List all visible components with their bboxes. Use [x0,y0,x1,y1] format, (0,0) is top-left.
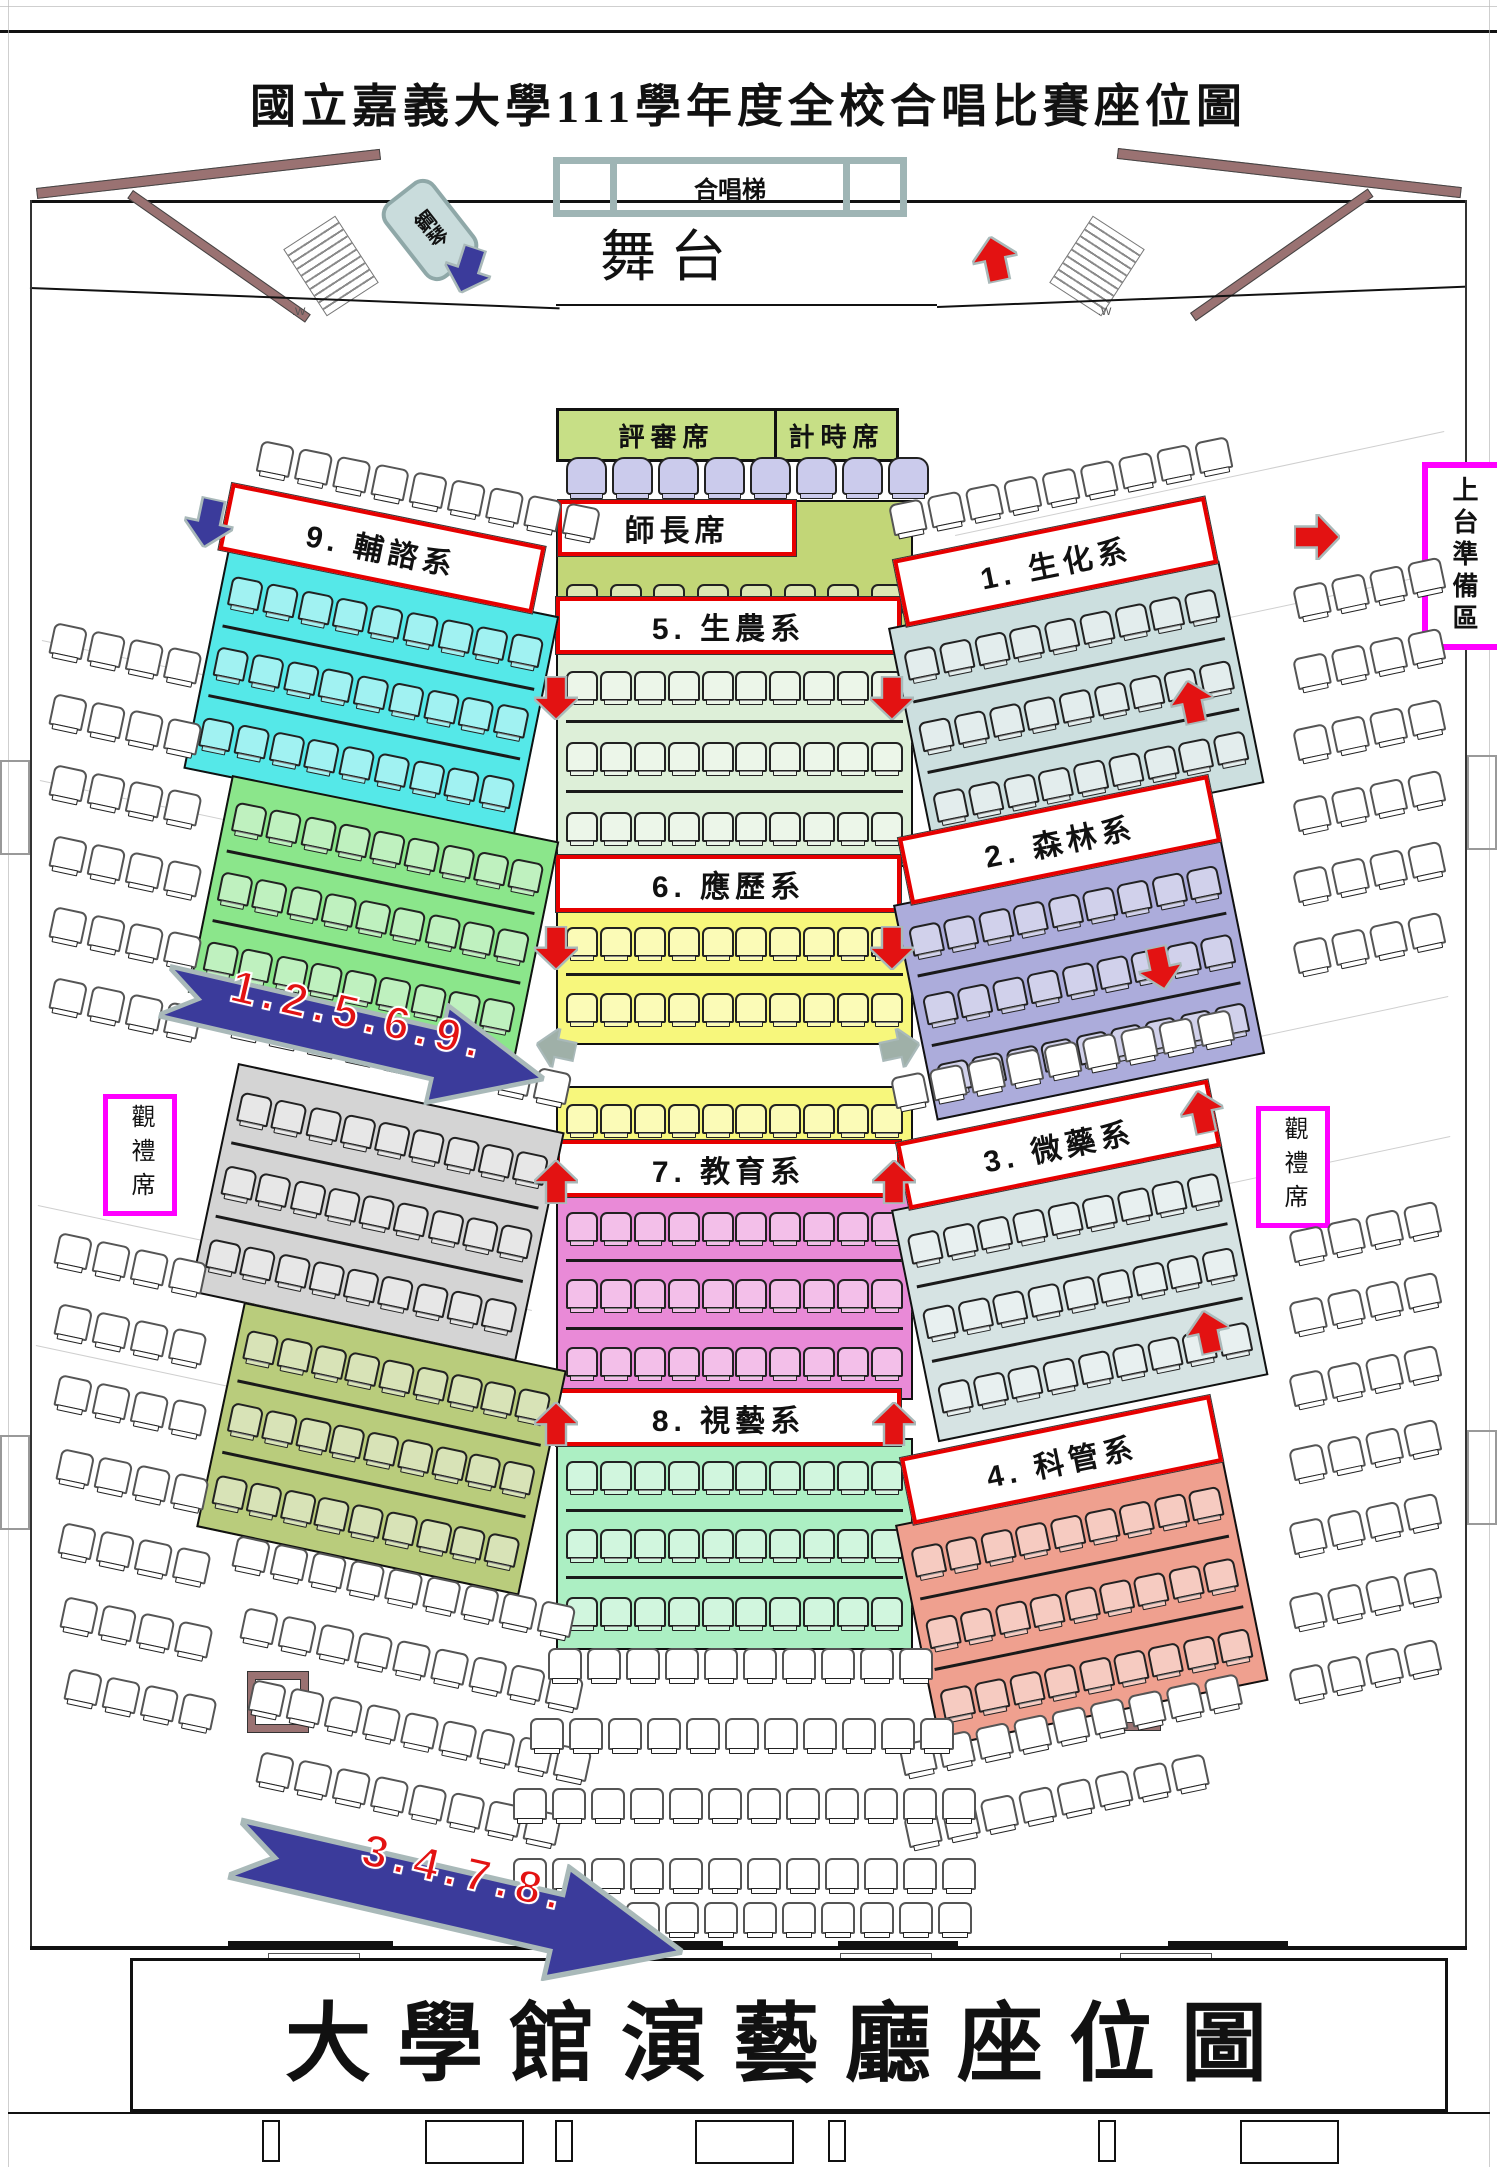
seat [803,742,835,772]
seat [769,1461,801,1491]
seat [600,671,632,701]
seat [1131,1260,1168,1296]
seat [178,1692,218,1730]
seat [537,1600,577,1638]
seat [803,1597,835,1627]
seat [979,1528,1016,1564]
seat [247,1679,287,1717]
seat [956,983,993,1019]
seat [1406,699,1446,737]
seat [496,1223,534,1259]
seat [347,1503,385,1539]
seat [803,1279,835,1309]
seat [964,483,1004,521]
seat [837,1597,869,1627]
seat [1043,1040,1083,1078]
seat [903,1858,937,1890]
seat [977,907,1014,943]
seat [476,1728,516,1766]
seat [1094,1769,1134,1807]
seat [168,1327,208,1365]
seat [48,835,88,873]
seat [566,1461,598,1491]
seat [899,1902,933,1934]
seat [408,1783,448,1821]
seat [316,1623,356,1661]
seat-row [53,1303,207,1366]
wall-line [30,200,32,1950]
seat [1158,1017,1198,1055]
seat [324,1187,362,1223]
seat [708,1858,742,1890]
door-box [1240,2120,1339,2164]
stage-edge [556,304,937,306]
seat-row [63,1668,217,1731]
seat [669,1788,703,1820]
seat [769,812,801,842]
seat-row [48,764,202,827]
seat [1402,1201,1442,1239]
seat [1107,752,1144,788]
seat [354,1631,394,1669]
seat [1119,1025,1159,1063]
seat [1402,1493,1442,1531]
seat [1083,1507,1120,1543]
seat [1364,1501,1404,1539]
page-title: 國立嘉義大學111學年度全校合唱比賽座位圖 [0,70,1497,136]
seat [1060,961,1097,997]
seat [168,1398,208,1436]
seat [1012,900,1049,936]
seat [926,490,966,528]
seat-row [566,652,903,723]
seat [702,927,734,957]
seat [1326,1361,1366,1399]
seat [566,812,598,842]
seat [1148,595,1185,631]
seat [566,1279,598,1309]
judges-seat-label: 評審席 [559,411,777,459]
seat [974,1722,1014,1760]
seat [55,1448,95,1486]
red-up-arrow-icon [872,1160,916,1204]
seat [1288,1591,1328,1629]
seat [1292,581,1332,619]
seat [370,463,410,501]
seat [769,671,801,701]
seat [735,1461,767,1491]
seat [938,638,975,674]
seat [668,1461,700,1491]
seat-row [566,1092,903,1146]
seat [217,871,254,907]
seat [668,927,700,957]
seat [1061,1275,1098,1311]
seat [612,457,653,495]
seat [634,812,666,842]
seat [1185,864,1222,900]
seat [569,1718,603,1750]
wall-segment [838,1941,958,1950]
seat [332,1767,372,1805]
seat [462,1216,500,1252]
seat [1058,688,1095,724]
seat [1216,1628,1253,1664]
seat [942,1788,976,1820]
seat [48,764,88,802]
seat [803,671,835,701]
seat [669,1858,703,1890]
seat [702,1529,734,1559]
seat [1037,766,1074,802]
seat [255,1751,295,1789]
seat [86,843,126,881]
seat [1326,1435,1366,1473]
wall-segment [1168,1941,1288,1950]
door-box [425,2120,524,2164]
seat-row [566,1444,903,1512]
seat [513,1788,547,1820]
seat [704,457,745,495]
seat [1147,1642,1184,1678]
seat [397,1438,435,1474]
seat [704,1902,738,1934]
seat [634,1461,666,1491]
door-post [262,2120,280,2162]
seat [59,1596,99,1634]
seat [1017,1786,1057,1824]
section-8-label: 8. 視藝系 [556,1389,901,1446]
seat [392,1639,432,1677]
seat-row [48,622,202,685]
seat [786,1858,820,1890]
seat [634,742,666,772]
seat [1326,1583,1366,1621]
seat [665,1648,699,1680]
seat [507,633,544,669]
seat [286,885,323,921]
seat [242,1330,280,1366]
seat [600,742,632,772]
seat [973,631,1010,667]
seat [424,913,461,949]
seat [227,576,264,612]
seat [1196,1009,1236,1047]
seat [552,1788,586,1820]
seat [125,780,165,818]
seat [1165,1681,1205,1719]
seat [1005,1048,1045,1086]
seat [786,1788,820,1820]
seat [1132,1571,1169,1607]
seat [97,1604,137,1642]
seat [1041,467,1081,505]
seat [735,993,767,1023]
seat [591,1788,625,1820]
wall-niche [1467,1430,1497,1525]
seat [634,1597,666,1627]
seat [743,1648,777,1680]
door-post [1098,2120,1116,2162]
judges-timer-box: 評審席 計時席 [556,408,899,462]
seat [447,479,487,517]
seat-row [48,693,202,756]
seat [938,1902,972,1934]
seat [438,844,475,880]
seat [1096,1268,1133,1304]
seat [130,1248,170,1286]
seat [881,1718,915,1750]
seat [174,1620,214,1658]
seat [1402,1272,1442,1310]
seat [837,742,869,772]
seat [1330,928,1370,966]
seat-row [566,457,929,495]
seat [587,1648,621,1680]
seat-row [1288,1567,1442,1630]
seat [803,1718,837,1750]
seat [506,1664,546,1702]
seat [1076,1349,1113,1385]
seat [956,1296,993,1332]
seat [966,1056,1006,1094]
seat [735,671,767,701]
seat [268,731,305,767]
seat-row [548,1648,933,1680]
seat [170,1472,210,1510]
frame-line [8,0,9,2167]
seat [1292,794,1332,832]
seat [211,1474,249,1510]
seat [48,977,88,1015]
seat [388,682,425,718]
seat [945,1535,982,1571]
seat [600,993,632,1023]
seat [1078,1656,1115,1692]
seat [702,1279,734,1309]
seat [384,1567,424,1605]
seat [1127,1689,1167,1727]
seat [860,1902,894,1934]
seat [647,1718,681,1750]
seat [668,993,700,1023]
seat [566,1212,598,1242]
seat [446,1373,484,1409]
auditorium-seating-plan: 國立嘉義大學111學年度全校合唱比賽座位圖 合唱梯 舞台 鋼琴 .W .W 評審… [0,0,1497,2167]
seat [803,1104,835,1134]
seat [600,1597,632,1627]
seat [408,759,445,795]
seat [443,766,480,802]
seat [903,1788,937,1820]
seat [460,1584,500,1622]
seat [168,1256,208,1294]
seat [473,851,510,887]
seat [274,1253,312,1289]
seat [702,1347,734,1377]
seat [48,622,88,660]
seat [1043,616,1080,652]
seat [1326,1288,1366,1326]
seat [837,1104,869,1134]
seat [1132,1761,1172,1799]
seat [437,619,474,655]
seat [378,1359,416,1395]
seat [743,1902,777,1934]
seat-row [1292,912,1446,975]
seat [295,1416,333,1452]
seat [1117,452,1157,490]
seat [1202,1557,1239,1593]
seat [1078,609,1115,645]
seat-row [566,910,903,976]
seat [1368,636,1408,674]
seat [262,583,299,619]
choir-riser: 合唱梯 [553,157,907,217]
seat [890,1071,930,1109]
seat [163,788,203,826]
seat [239,1607,279,1645]
seat [408,1128,446,1164]
seat [735,927,767,957]
seat-row [1292,770,1446,833]
seat [1406,912,1446,950]
seat [93,1456,133,1494]
seat [837,927,869,957]
seat [338,745,375,781]
seat [735,1104,767,1134]
seat [132,1464,172,1502]
seat [634,1347,666,1377]
wall-niche [1467,755,1497,850]
wall-strip [1190,189,1373,322]
seat [172,1546,212,1584]
seat [1116,1186,1153,1222]
seat [1146,1335,1183,1371]
seat [499,1460,537,1496]
seat [764,1718,798,1750]
stair-label: .W [1098,306,1111,318]
seat [370,1775,410,1813]
seat [423,689,460,725]
seat [125,709,165,747]
seat [769,927,801,957]
seat [231,1535,271,1573]
red-right-arrow-icon [1294,514,1340,560]
seat [702,742,734,772]
seat [86,914,126,952]
seat [270,1099,308,1135]
seat [493,703,530,739]
seat [1150,871,1187,907]
seat [1056,1777,1096,1815]
seat [1292,723,1332,761]
seat [608,1718,642,1750]
seat [747,1788,781,1820]
seat-row [1288,1345,1442,1408]
seat [1081,1032,1121,1070]
seat [600,1212,632,1242]
seat [735,1529,767,1559]
seat [468,1656,508,1694]
red-up-arrow-icon [1176,1086,1228,1138]
seat [324,1695,364,1733]
seat [1183,588,1220,624]
seat [803,1347,835,1377]
seat [988,702,1025,738]
seat [402,611,439,647]
seat [600,1279,632,1309]
seat [1182,1635,1219,1671]
seat [991,976,1028,1012]
seat [1326,1655,1366,1693]
seat [634,671,666,701]
seat [430,1648,470,1686]
seat [1023,695,1060,731]
seat-row [1292,699,1446,762]
seat [837,671,869,701]
wall-strip [36,149,381,199]
seat [769,993,801,1023]
seat [236,1091,274,1127]
seat [446,1792,486,1830]
seat [837,1347,869,1377]
seat [1364,1280,1404,1318]
seat [251,878,288,914]
seat [1177,737,1214,773]
seat [668,1597,700,1627]
seat [415,1517,453,1553]
seat [277,1615,317,1653]
seat [1288,1663,1328,1701]
seat [318,667,355,703]
seat [1111,1342,1148,1378]
seat [53,1232,93,1270]
seat [125,638,165,676]
seat [53,1303,93,1341]
red-down-arrow-icon [534,926,578,970]
seat [668,671,700,701]
seat [952,709,989,745]
seat [837,1461,869,1491]
seat [1288,1225,1328,1263]
frame-line [0,30,1497,33]
seat [942,914,979,950]
seat [566,993,598,1023]
seat [334,823,371,859]
seat [507,858,544,894]
seat [404,837,441,873]
seat-row [566,976,903,1039]
seat [782,1648,816,1680]
seat-row [53,1232,207,1295]
seat [198,716,235,752]
seat [971,1370,1008,1406]
seat [1203,1673,1243,1711]
timer-seat-label: 計時席 [777,411,896,459]
seat [1288,1369,1328,1407]
seat [668,1347,700,1377]
seat [769,1279,801,1309]
seat [227,1402,265,1438]
seat [220,1165,258,1201]
seat [803,1529,835,1559]
seat [922,990,959,1026]
seat [803,1461,835,1491]
seat [212,646,249,682]
seat [634,1279,666,1309]
riser-end-cell [843,164,900,210]
